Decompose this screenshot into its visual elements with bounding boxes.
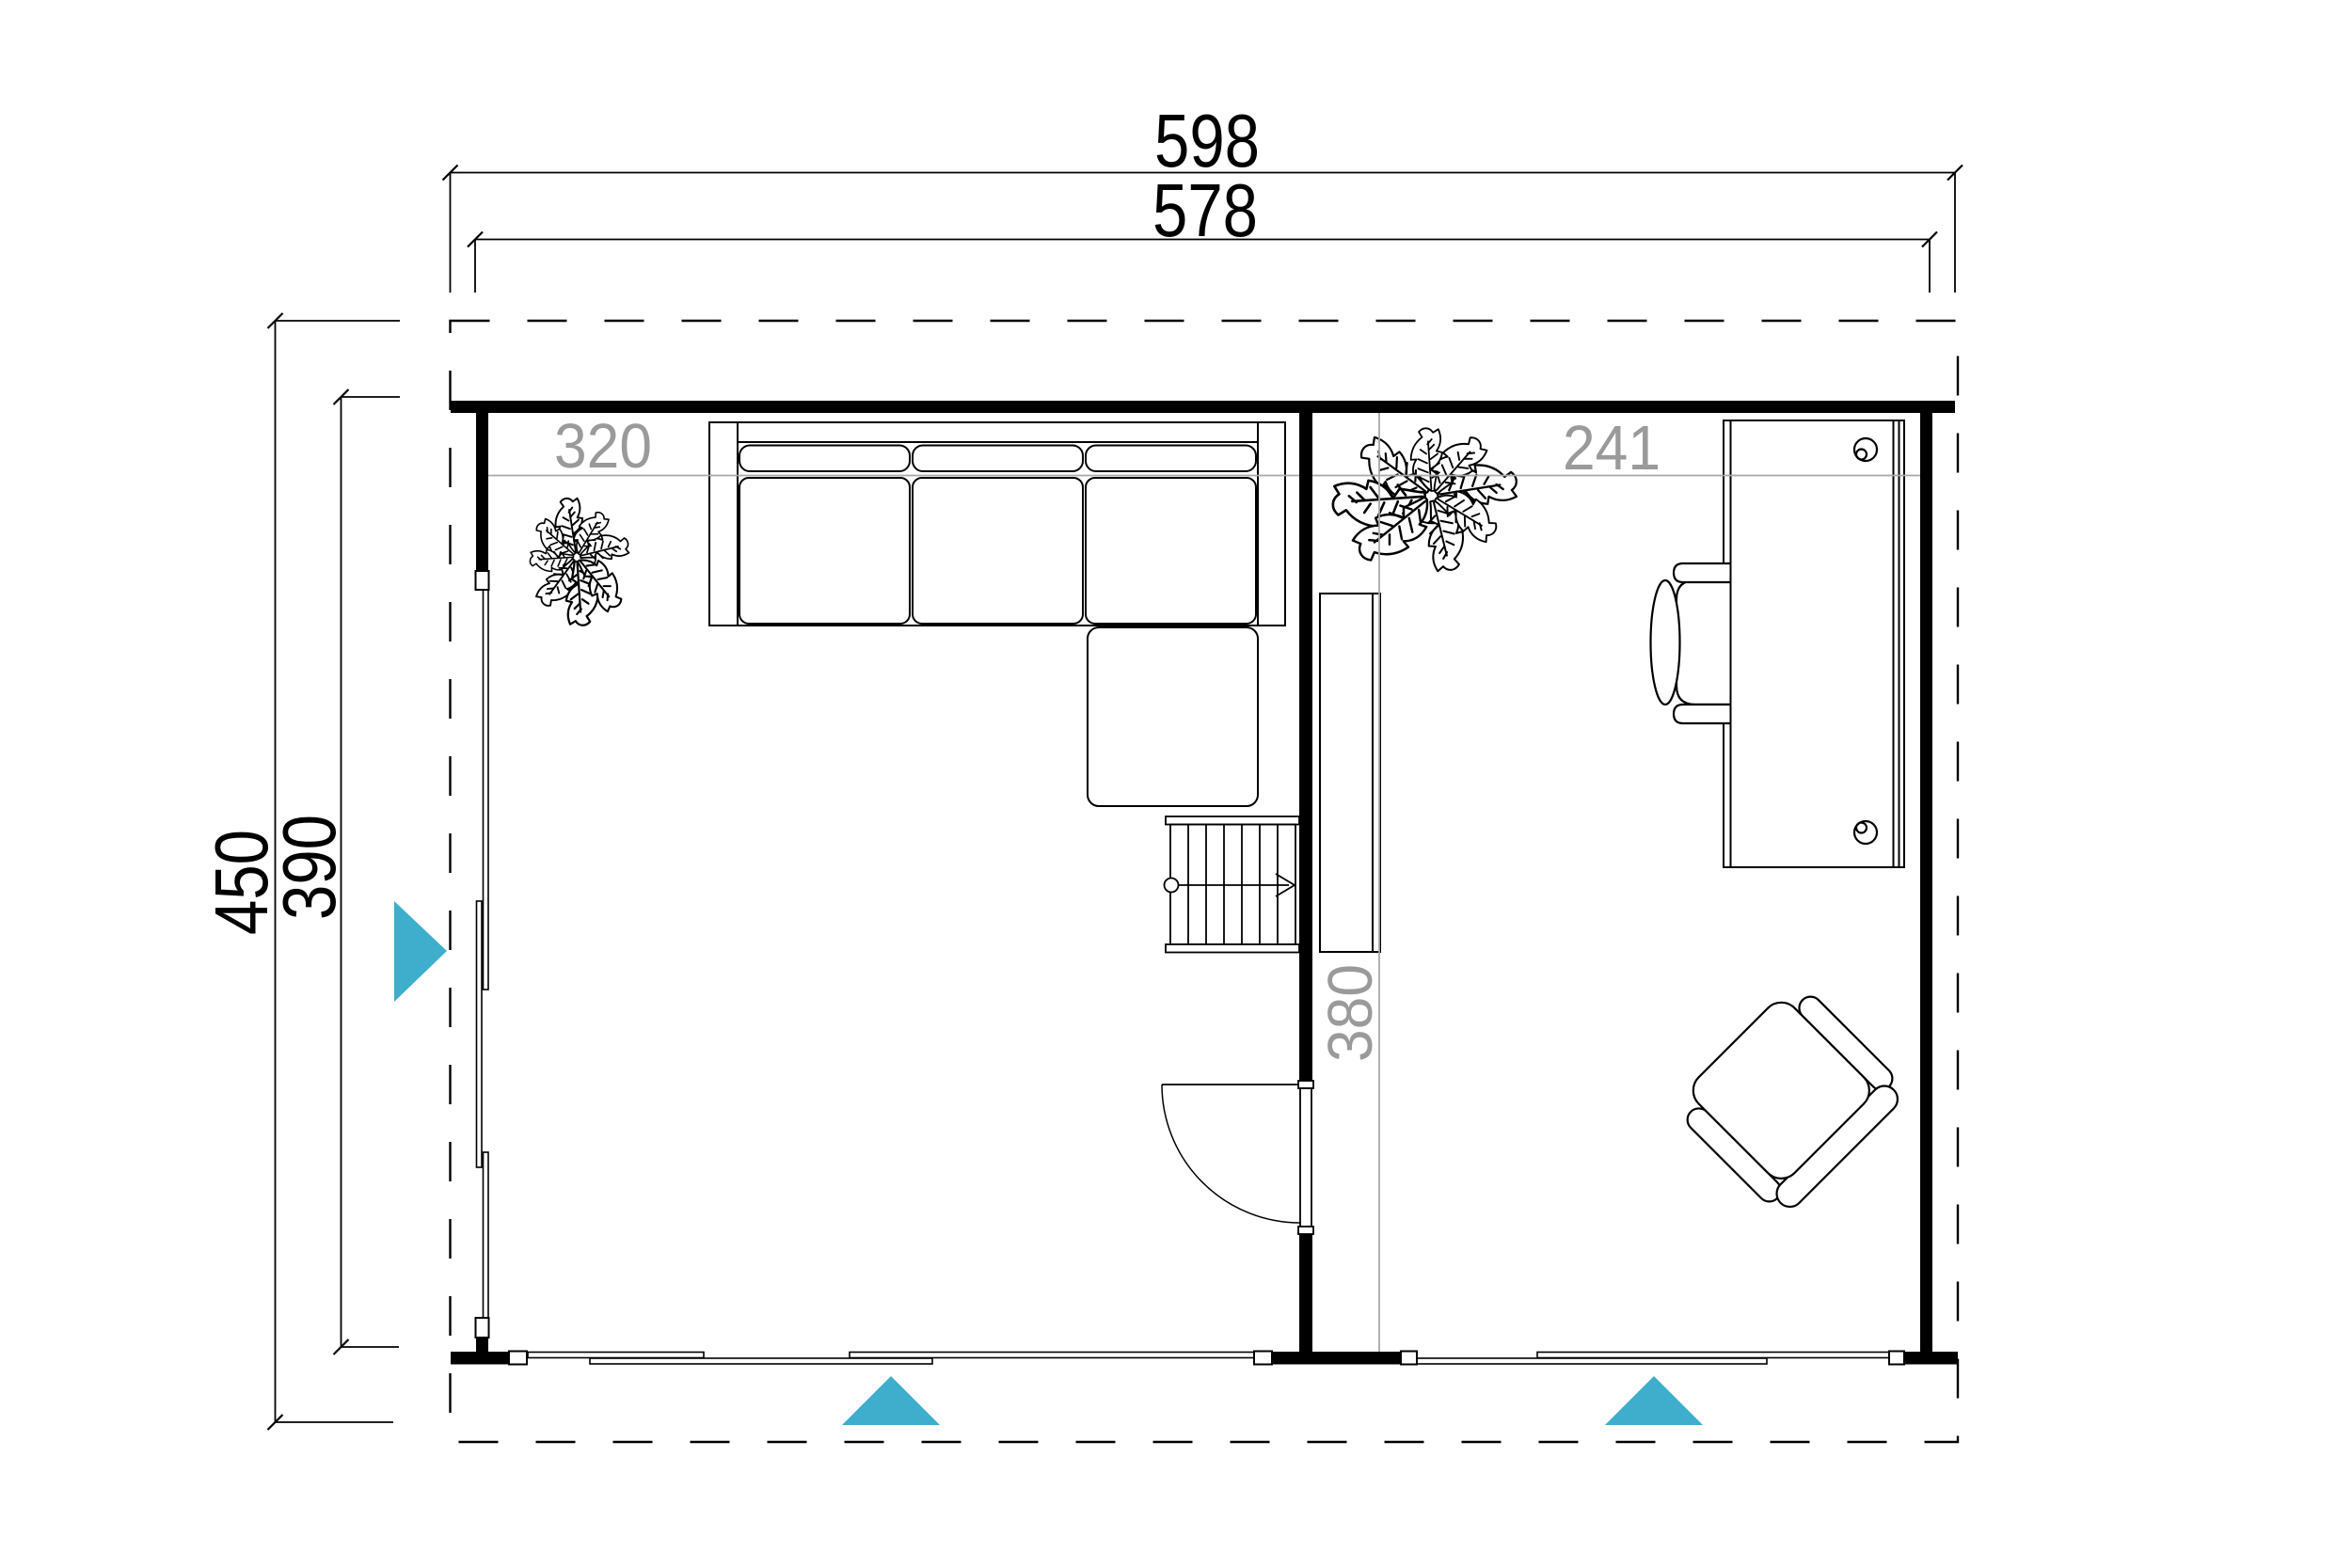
svg-text:380: 380 xyxy=(1315,964,1386,1062)
svg-text:390: 390 xyxy=(267,815,351,920)
svg-text:320: 320 xyxy=(554,411,652,482)
svg-text:578: 578 xyxy=(1152,168,1258,252)
svg-text:241: 241 xyxy=(1563,413,1661,483)
